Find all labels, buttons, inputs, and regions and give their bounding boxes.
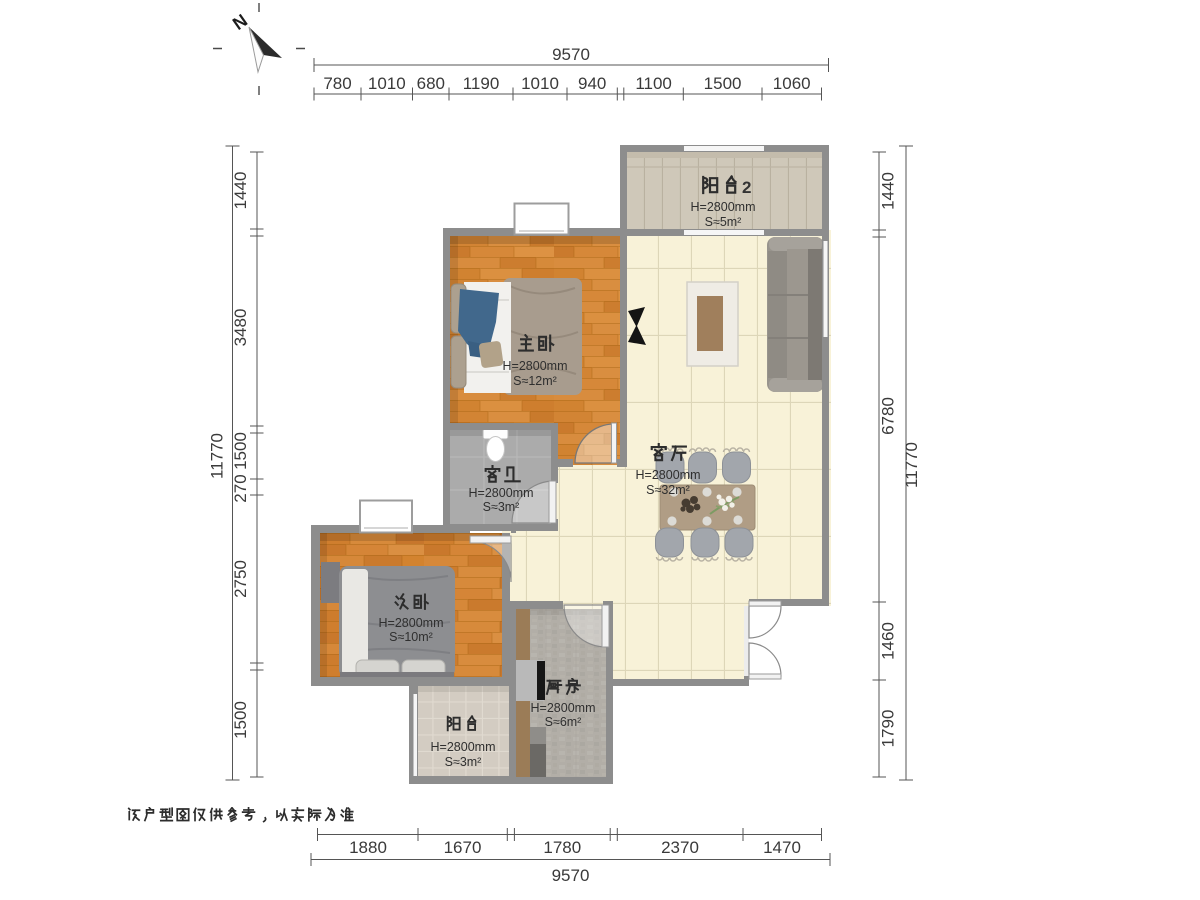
svg-text:S≈10m²: S≈10m² bbox=[389, 630, 433, 644]
svg-text:H=2800mm: H=2800mm bbox=[431, 740, 496, 754]
svg-text:2750: 2750 bbox=[231, 560, 250, 598]
svg-text:1880: 1880 bbox=[349, 838, 387, 857]
svg-text:1790: 1790 bbox=[879, 710, 898, 748]
svg-text:S≈32m²: S≈32m² bbox=[646, 483, 690, 497]
svg-text:1780: 1780 bbox=[543, 838, 581, 857]
svg-text:H=2800mm: H=2800mm bbox=[469, 486, 534, 500]
svg-text:1100: 1100 bbox=[635, 74, 672, 93]
svg-text:1460: 1460 bbox=[879, 622, 898, 660]
svg-text:1440: 1440 bbox=[231, 172, 250, 210]
svg-text:1500: 1500 bbox=[231, 701, 250, 739]
svg-text:1500: 1500 bbox=[704, 74, 742, 93]
svg-text:S≈3m²: S≈3m² bbox=[483, 500, 520, 514]
svg-text:H=2800mm: H=2800mm bbox=[691, 200, 756, 214]
svg-text:2: 2 bbox=[742, 178, 751, 197]
svg-text:H=2800mm: H=2800mm bbox=[503, 359, 568, 373]
svg-text:H=2800mm: H=2800mm bbox=[636, 468, 701, 482]
svg-text:940: 940 bbox=[578, 74, 606, 93]
svg-text:1060: 1060 bbox=[773, 74, 811, 93]
svg-text:H=2800mm: H=2800mm bbox=[531, 701, 596, 715]
svg-text:1500: 1500 bbox=[231, 432, 250, 470]
svg-text:780: 780 bbox=[323, 74, 351, 93]
svg-text:1010: 1010 bbox=[368, 74, 406, 93]
svg-text:S≈5m²: S≈5m² bbox=[705, 215, 742, 229]
svg-text:11770: 11770 bbox=[208, 433, 227, 479]
svg-text:S≈3m²: S≈3m² bbox=[445, 755, 482, 769]
svg-text:H=2800mm: H=2800mm bbox=[379, 616, 444, 630]
svg-text:3480: 3480 bbox=[231, 309, 250, 347]
svg-text:9570: 9570 bbox=[552, 45, 590, 64]
svg-text:680: 680 bbox=[417, 74, 445, 93]
svg-text:9570: 9570 bbox=[552, 866, 590, 885]
svg-text:S≈6m²: S≈6m² bbox=[545, 715, 582, 729]
svg-text:1440: 1440 bbox=[879, 172, 898, 210]
svg-text:1470: 1470 bbox=[763, 838, 801, 857]
svg-text:S≈12m²: S≈12m² bbox=[513, 374, 557, 388]
svg-text:1190: 1190 bbox=[463, 74, 500, 93]
svg-text:1670: 1670 bbox=[444, 838, 482, 857]
svg-text:1010: 1010 bbox=[521, 74, 559, 93]
svg-text:11770: 11770 bbox=[902, 442, 921, 488]
svg-text:270: 270 bbox=[231, 474, 250, 502]
svg-text:2370: 2370 bbox=[661, 838, 699, 857]
svg-text:6780: 6780 bbox=[879, 397, 898, 435]
